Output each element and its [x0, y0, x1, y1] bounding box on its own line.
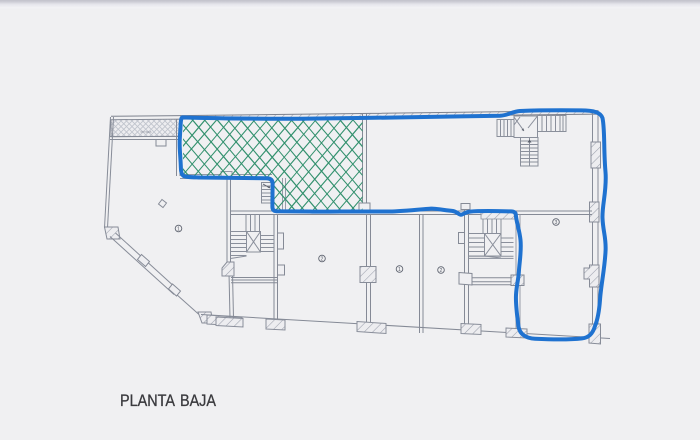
svg-text:1: 1 — [398, 267, 401, 273]
svg-text:2: 2 — [440, 268, 443, 274]
svg-text:terraza: terraza — [141, 130, 152, 134]
svg-text:1: 1 — [177, 226, 180, 232]
svg-text:2: 2 — [321, 256, 324, 262]
svg-text:3: 3 — [555, 220, 558, 226]
